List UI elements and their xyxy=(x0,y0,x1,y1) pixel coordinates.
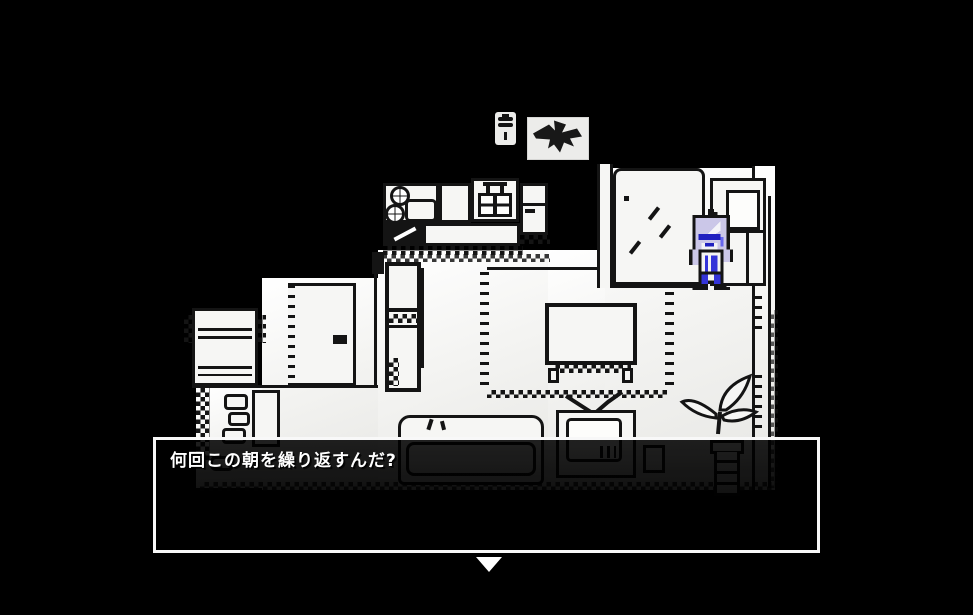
shelf-slats xyxy=(198,366,252,376)
table-leg xyxy=(622,368,633,383)
counter-shadow-dither xyxy=(520,235,550,244)
lamp-coil xyxy=(498,123,513,127)
faucet xyxy=(486,186,490,193)
fridge-handle xyxy=(525,209,535,213)
kitchen-counter xyxy=(439,183,471,223)
cooking-pot xyxy=(405,199,437,222)
sink-basin xyxy=(478,193,512,217)
lamp-cord xyxy=(504,132,507,140)
dialogue-text: 何回この朝を繰り返すんだ? xyxy=(170,446,397,471)
lamp-coil xyxy=(502,114,509,118)
hanging-lamp-icon xyxy=(495,112,516,145)
shelf-slats xyxy=(198,328,252,342)
continue-arrow[interactable]: ▼ xyxy=(476,557,502,572)
table-skirt xyxy=(551,364,631,373)
potted-plant xyxy=(676,368,764,446)
fridge-divider xyxy=(521,203,547,206)
blanket-dot xyxy=(624,196,629,201)
dialogue-box[interactable]: 何回この朝を繰り返すんだ? xyxy=(153,437,820,553)
bedside-fringe xyxy=(753,296,762,334)
faucet xyxy=(500,186,504,193)
nightstand-divider xyxy=(746,233,749,283)
door-hinge-edge xyxy=(288,285,295,384)
shelf-side-dither xyxy=(258,315,266,343)
dish-stack xyxy=(228,412,250,426)
player-character xyxy=(686,204,736,298)
headboard-post xyxy=(597,164,613,288)
shelf-side-dither xyxy=(184,315,192,343)
low-table xyxy=(545,303,637,365)
cabinet-band xyxy=(389,314,417,323)
rug-fringe xyxy=(665,272,674,390)
cabinet-divider xyxy=(389,325,417,328)
stove-burner xyxy=(385,204,405,224)
crow-panel xyxy=(527,117,589,160)
game-screen[interactable]: 何回この朝を繰り返すんだ? ▼ xyxy=(0,0,973,615)
wall-corner-line xyxy=(374,274,377,388)
cabinet-corner-dither xyxy=(389,358,399,386)
crow-icon xyxy=(527,117,589,160)
rug-fringe xyxy=(480,272,489,390)
table-leg xyxy=(548,368,559,383)
counter-shadow-dither xyxy=(378,254,550,262)
dish-stack xyxy=(224,394,248,410)
door-handle xyxy=(333,335,347,344)
cabinet-shadow xyxy=(421,268,424,368)
cabinet-divider xyxy=(389,308,417,312)
